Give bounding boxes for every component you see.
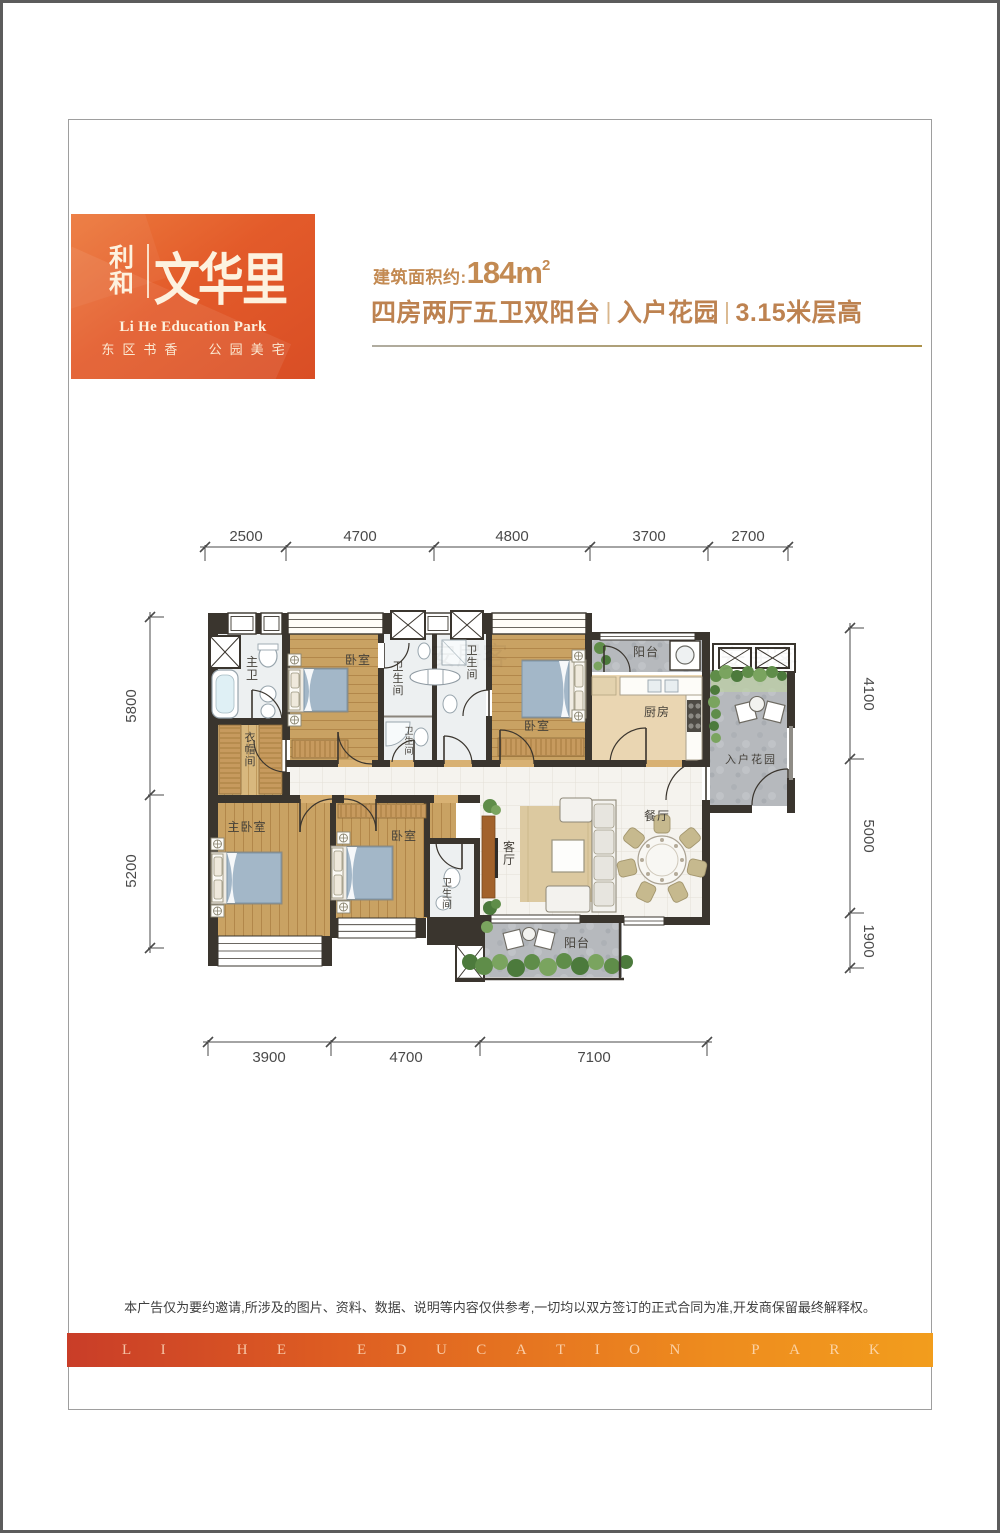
svg-text:卫生间: 卫生间 <box>442 878 452 911</box>
svg-text:客厅: 客厅 <box>503 839 515 867</box>
svg-text:卫生间: 卫生间 <box>404 726 413 756</box>
svg-text:3900: 3900 <box>252 1049 285 1066</box>
svg-text:阳台: 阳台 <box>564 935 590 950</box>
svg-text:阳台: 阳台 <box>633 644 659 659</box>
svg-text:卫生间: 卫生间 <box>393 661 404 697</box>
svg-text:3700: 3700 <box>632 528 665 545</box>
svg-text:主卫: 主卫 <box>246 655 258 682</box>
svg-text:2500: 2500 <box>229 528 262 545</box>
svg-text:2700: 2700 <box>731 528 764 545</box>
svg-text:卧室: 卧室 <box>524 718 550 733</box>
svg-text:1900: 1900 <box>860 924 877 957</box>
svg-text:4100: 4100 <box>860 677 877 710</box>
svg-text:4700: 4700 <box>389 1049 422 1066</box>
svg-text:5200: 5200 <box>123 854 140 887</box>
svg-text:7100: 7100 <box>577 1049 610 1066</box>
svg-text:卧室: 卧室 <box>391 828 417 843</box>
svg-text:安居客: 安居客 <box>720 644 798 674</box>
svg-text:安居客: 安居客 <box>430 641 508 671</box>
svg-text:餐厅: 餐厅 <box>644 808 670 823</box>
svg-text:衣帽间: 衣帽间 <box>245 730 256 768</box>
svg-text:4800: 4800 <box>495 528 528 545</box>
svg-text:厨房: 厨房 <box>644 704 670 719</box>
svg-text:主卧室: 主卧室 <box>227 819 266 834</box>
svg-text:入户花园: 入户花园 <box>725 752 777 766</box>
svg-text:4700: 4700 <box>343 528 376 545</box>
svg-text:卧室: 卧室 <box>345 652 371 667</box>
svg-text:5000: 5000 <box>860 819 877 852</box>
svg-text:5800: 5800 <box>123 689 140 722</box>
